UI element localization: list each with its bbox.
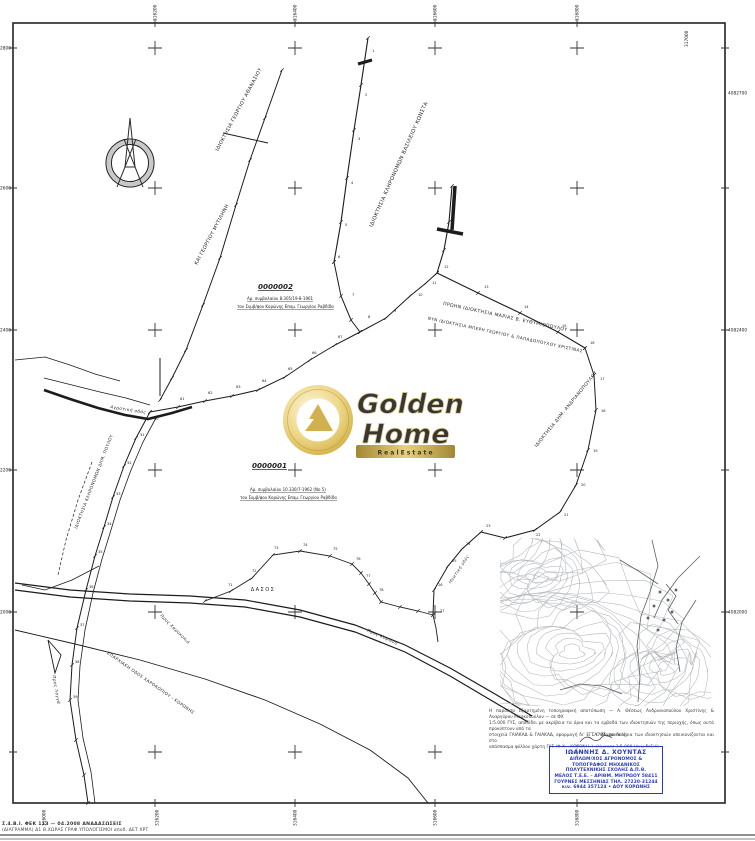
- inset-road-line: [654, 556, 700, 618]
- inset-building-mark: [647, 617, 650, 620]
- survey-point-tick: [424, 281, 427, 284]
- boundary-polyline: [15, 357, 120, 381]
- survey-point-number: 10: [418, 293, 423, 297]
- survey-point-tick: [558, 510, 561, 513]
- parcel-deed-line: Αρ. συμβολαίου 8.305/19-8-1961: [247, 296, 314, 301]
- grid-cross: [428, 323, 442, 337]
- contour-line: [620, 630, 708, 700]
- grid-cross: [428, 745, 442, 759]
- edge-coordinate-label: 316200: [153, 4, 159, 21]
- parcel-deed-line: του Συμβ/φου Κορώνης Επαμ. Γεωργίου Ραβδ…: [240, 495, 337, 500]
- boundary-polyline: [48, 640, 61, 673]
- survey-point-number: 74: [303, 543, 308, 547]
- edge-coordinate-label: 317000: [684, 30, 690, 47]
- edge-coordinate-label: 4082700: [728, 91, 747, 97]
- edge-coordinate-label: 316200: [155, 809, 161, 826]
- survey-point-number: 31: [140, 433, 145, 437]
- survey-point-number: 32: [127, 461, 132, 465]
- boundary-polyline: [15, 630, 428, 803]
- survey-point-number: 26: [438, 583, 443, 587]
- survey-point-number: 39: [73, 695, 78, 699]
- grid-cross: [148, 745, 162, 759]
- survey-point-number: 1: [372, 49, 374, 53]
- contour-line: [507, 601, 625, 697]
- survey-point-number: 6: [338, 255, 341, 259]
- edge-coordinate-label: 316800: [575, 4, 581, 21]
- map-label: ΚΑΙ ΓΕΩΡΓΙΟΥ ΜΥΤΙΛΗΝΗ: [194, 203, 231, 266]
- survey-point-number: 21: [564, 513, 569, 517]
- inset-building-mark: [667, 599, 670, 602]
- survey-point-tick: [460, 547, 463, 550]
- grid-cross: [288, 463, 302, 477]
- grid-cross: [148, 463, 162, 477]
- grid-cross: [570, 181, 584, 195]
- contour-line: [552, 638, 596, 664]
- inset-building-mark: [653, 605, 656, 608]
- contour-line: [609, 622, 741, 710]
- map-label: ΕΠΑΡΧΙΑΚΗ ΟΔΟΣ ΧΑΡΟΚΟΠΙΟΥ - ΚΟΡΩΝΗΣ: [106, 650, 195, 715]
- golden-home-watermark: Golden Home R e a l E s t a t e: [283, 385, 464, 458]
- survey-point-number: 35: [98, 550, 103, 554]
- map-label: ΙΔΙΟΚΤΗΣΙΑ ΔΗΜ. ΑΝΔΡΙΑΝΟΠΟΥΛΟΥ: [534, 370, 599, 449]
- edge-coordinate-label: 4082000: [0, 610, 11, 616]
- signature-squiggle: [580, 735, 612, 742]
- contour-line: [658, 661, 679, 675]
- grid-cross: [570, 41, 584, 55]
- survey-point-number: 30: [154, 417, 159, 421]
- grid-cross: [148, 323, 162, 337]
- inset-building-mark: [663, 619, 666, 622]
- grid-cross: [288, 745, 302, 759]
- grid-cross: [148, 181, 162, 195]
- survey-point-number: 14: [524, 305, 529, 309]
- edge-coordinate-label: 316600: [433, 809, 439, 826]
- edge-coordinate-label: 4082200: [0, 468, 11, 474]
- survey-point-tick: [408, 294, 411, 297]
- survey-point-number: 67: [338, 335, 343, 339]
- watermark-ribbon-text: R e a l E s t a t e: [377, 450, 432, 457]
- boundary-polyline: [334, 38, 368, 262]
- grid-cross: [428, 181, 442, 195]
- survey-point-number: 38: [75, 660, 80, 664]
- survey-point-tick: [446, 564, 449, 567]
- edge-coordinate-label: 4082600: [0, 186, 11, 192]
- survey-point-number: 2: [365, 93, 367, 97]
- survey-point-number: 18: [601, 409, 606, 413]
- boundary-polyline: [223, 133, 268, 143]
- grid-cross: [288, 323, 302, 337]
- parcel-number: 0000002: [258, 282, 293, 291]
- survey-point-number: 17: [600, 377, 605, 381]
- survey-point-number: 16: [590, 341, 595, 345]
- contour-line: [502, 595, 641, 696]
- survey-point-number: 8: [368, 315, 371, 319]
- inset-building-mark: [657, 629, 660, 632]
- survey-point-number: 4: [351, 181, 354, 185]
- survey-point-tick: [158, 398, 161, 401]
- contour-line: [517, 610, 619, 695]
- topographic-map-canvas: 3162003164003166003168003170003160003162…: [0, 0, 755, 841]
- grid-cross: [428, 41, 442, 55]
- boundary-polyline: [205, 551, 433, 615]
- survey-point-number: 11: [432, 281, 437, 285]
- map-label: ΝΥΝ ΙΔΙΟΚΤΗΣΙΑ ΜΠΕΡΗ ΓΕΩΡΓΙΟΥ & ΠΑΠΑΔΟΠΟ…: [427, 316, 583, 354]
- survey-point-number: 78: [379, 588, 384, 592]
- survey-point-number: 34: [107, 522, 112, 526]
- north-arrow-icon: [106, 118, 154, 187]
- contour-line: [438, 580, 675, 732]
- map-label: ΙΔΙΟΚΤΗΣΙΑ ΓΕΩΡΓΙΟΥ ΑΘΑΝΑΣΙΟΥ: [215, 67, 264, 152]
- map-label: ΔΑΣΟΣ: [251, 587, 276, 593]
- survey-point-number: 12: [444, 265, 449, 269]
- parcel-number: 0000001: [252, 461, 287, 470]
- inset-contour-map: [424, 478, 741, 732]
- contour-line: [527, 622, 613, 689]
- grid-cross: [570, 323, 584, 337]
- map-label: Προς Χαροκοπιό: [159, 613, 191, 645]
- survey-point-number: 19: [593, 449, 598, 453]
- survey-point-number: 65: [288, 367, 293, 371]
- parcel-annotation-0000002: 0000002 Αρ. συμβολαίου 8.305/19-8-1961 τ…: [237, 282, 334, 309]
- survey-point-number: 13: [484, 285, 489, 289]
- boundary-polyline: [358, 60, 372, 64]
- survey-point-number: 3: [358, 137, 360, 141]
- survey-point-number: 64: [262, 379, 267, 383]
- survey-point-number: 73: [274, 546, 279, 550]
- survey-point-number: 37: [80, 623, 85, 627]
- boundary-polyline: [78, 416, 157, 803]
- inset-building-mark: [675, 589, 678, 592]
- contour-line: [559, 644, 585, 659]
- edge-coordinate-label: 4082400: [0, 328, 11, 334]
- grid-cross: [570, 463, 584, 477]
- boundary-polyline: [437, 229, 463, 234]
- grid-cross: [428, 463, 442, 477]
- survey-point-number: 20: [581, 483, 586, 487]
- survey-point-number: 25: [452, 559, 457, 563]
- survey-point-number: 9: [394, 309, 397, 313]
- watermark-word-golden: Golden: [357, 389, 464, 420]
- grid-cross: [570, 745, 584, 759]
- survey-point-number: 27: [440, 609, 445, 613]
- survey-point-number: 63: [236, 385, 241, 389]
- inset-building-mark: [671, 611, 674, 614]
- survey-point-number: 71: [228, 583, 233, 587]
- grid-cross: [288, 181, 302, 195]
- parcel-deed-line: Αρ. συμβολαίου 10.330/7-1962 (Νο 5): [250, 487, 326, 492]
- survey-point-number: 75: [333, 547, 338, 551]
- inset-building-mark: [659, 591, 662, 594]
- survey-point-tick: [384, 316, 387, 319]
- survey-point-number: 62: [208, 391, 213, 395]
- survey-point-tick: [170, 376, 173, 379]
- edge-coordinate-label: 4082400: [728, 328, 747, 334]
- map-label: ΙΔΙΟΚΤΗΣΙΑ ΚΛΗΡΟΝΟΜΩΝ ΒΑΣΙΛΕΙΟΥ ΚΩΝΣΤΑ: [369, 101, 430, 228]
- edge-coordinate-label: 316600: [433, 4, 439, 21]
- survey-point-number: 33: [116, 492, 121, 496]
- boundary-polyline: [334, 262, 360, 332]
- map-label: Ιδιωτική οδός: [447, 554, 470, 584]
- survey-point-number: 22: [536, 533, 541, 537]
- boundary-polyline: [15, 583, 532, 716]
- map-label: Προς Λογγά: [51, 675, 61, 705]
- edge-coordinate-label: 316400: [293, 809, 299, 826]
- survey-point-number: 76: [356, 557, 361, 561]
- grid-cross: [288, 41, 302, 55]
- boundary-polyline: [433, 615, 438, 642]
- survey-point-number: 36: [89, 585, 94, 589]
- grid-cross: [148, 41, 162, 55]
- survey-point-number: 77: [366, 574, 371, 578]
- survey-point-tick: [308, 358, 311, 361]
- parcel-annotation-0000001: 0000001 Αρ. συμβολαίου 10.330/7-1962 (Νο…: [240, 461, 337, 500]
- edge-coordinate-label: 4082800: [0, 46, 11, 52]
- parcel-deed-line: του Συμβ/φου Κορώνης Επαμ. Γεωργίου Ραβδ…: [237, 304, 334, 309]
- contour-line: [475, 521, 535, 564]
- boundary-polyline: [58, 462, 92, 575]
- survey-point-number: 61: [180, 397, 185, 401]
- survey-map-sheet: 3162003164003166003168003170003160003162…: [0, 0, 755, 841]
- boundary-polyline: [360, 273, 437, 332]
- survey-point-number: 7: [352, 293, 354, 297]
- edge-coordinate-label: 316800: [575, 809, 581, 826]
- survey-point-tick: [333, 343, 336, 346]
- contour-line: [492, 540, 580, 611]
- survey-point-number: 23: [486, 524, 491, 528]
- boundary-polyline: [44, 378, 150, 405]
- boundary-polyline: [452, 186, 455, 230]
- edge-coordinate-label: 4082000: [728, 610, 747, 616]
- survey-point-number: 66: [312, 351, 317, 355]
- edge-coordinate-label: 316400: [293, 4, 299, 21]
- survey-point-number: 72: [252, 569, 257, 573]
- boundary-polyline: [70, 412, 150, 803]
- survey-point-tick: [283, 375, 286, 378]
- boundary-polyline: [15, 590, 528, 722]
- edge-coordinate-label: 316000: [42, 809, 48, 826]
- survey-point-tick: [250, 576, 253, 579]
- survey-point-number: 24: [466, 542, 471, 546]
- survey-point-number: 5: [345, 223, 347, 227]
